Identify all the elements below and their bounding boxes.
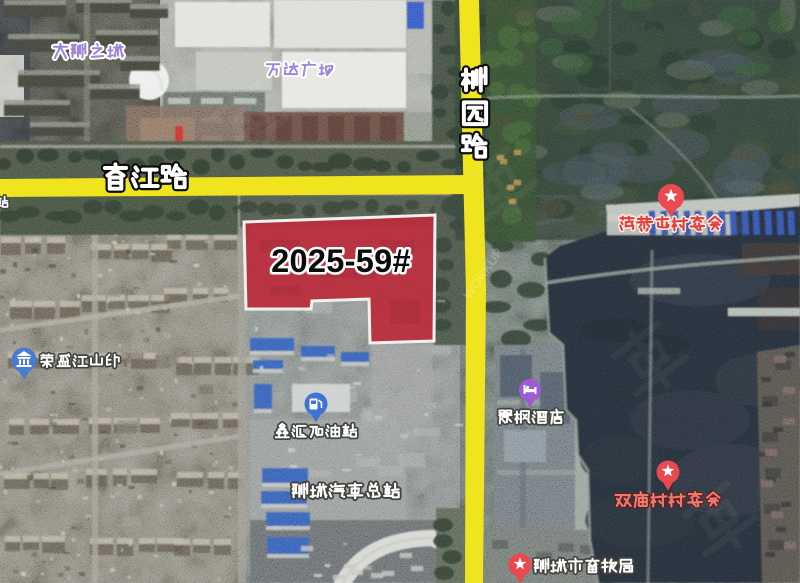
svg-text:2025-59#: 2025-59# bbox=[271, 243, 411, 279]
